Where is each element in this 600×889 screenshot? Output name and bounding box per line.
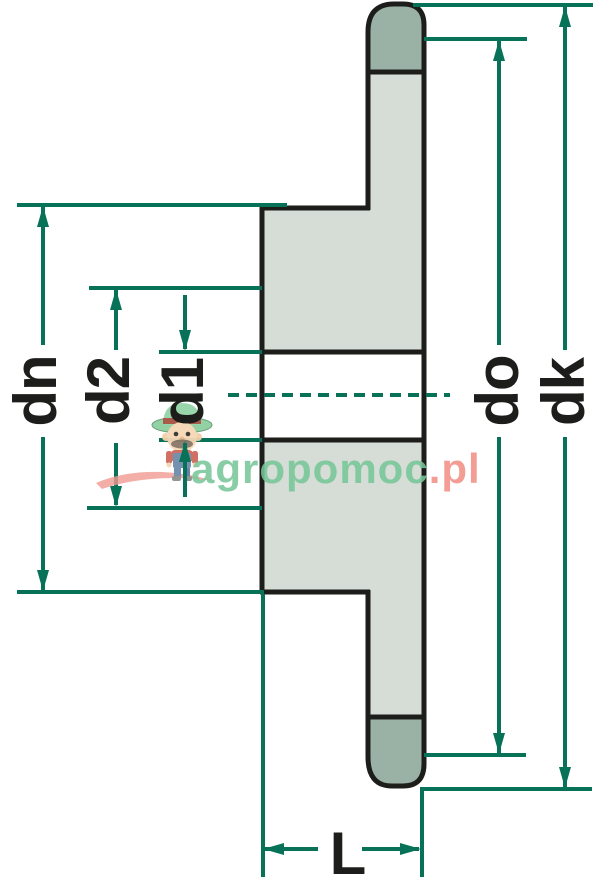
sprocket-dimension-drawing: agropomoc.pl dn d2 d1 do dk L — [0, 0, 600, 889]
dim-d1-lower-overlay — [0, 0, 600, 889]
